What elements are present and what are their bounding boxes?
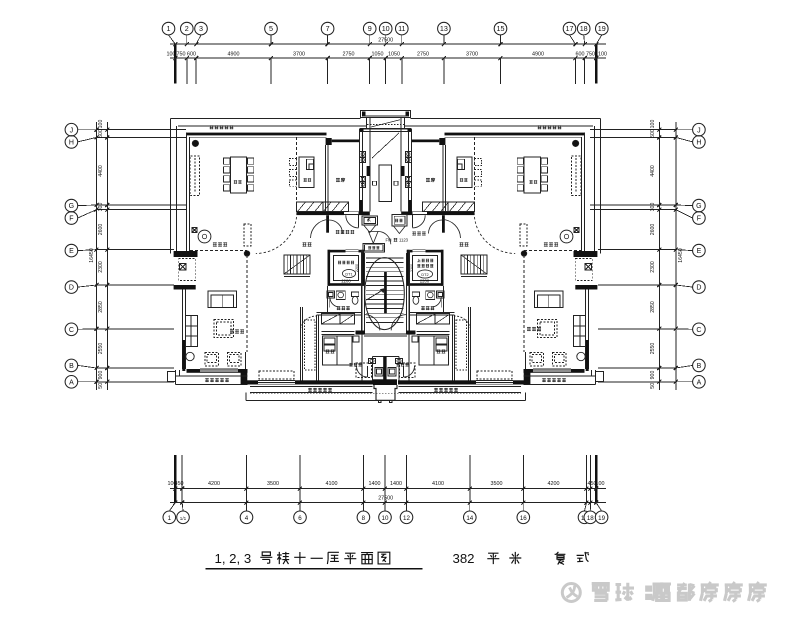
svg-text:E: E (697, 248, 702, 255)
svg-text:100: 100 (650, 120, 656, 129)
svg-text:4200: 4200 (208, 481, 220, 487)
svg-text:3500: 3500 (491, 481, 503, 487)
svg-text:5: 5 (269, 24, 273, 33)
svg-text:4100: 4100 (432, 481, 444, 487)
svg-text:2600: 2600 (98, 224, 104, 236)
svg-text:DT2: DT2 (421, 273, 428, 277)
svg-text:C: C (69, 327, 74, 334)
svg-text:8: 8 (362, 515, 366, 522)
svg-text:6: 6 (298, 515, 302, 522)
svg-text:G: G (696, 203, 701, 210)
svg-text:F: F (697, 216, 701, 223)
svg-text:100: 100 (598, 52, 607, 58)
svg-text:500: 500 (98, 129, 104, 138)
svg-text:1050: 1050 (372, 52, 384, 58)
svg-text:B: B (697, 363, 702, 370)
svg-text:16450: 16450 (678, 248, 684, 263)
svg-text:10: 10 (382, 515, 389, 522)
svg-text:A: A (69, 379, 74, 386)
svg-text:H: H (696, 140, 701, 147)
svg-text:50: 50 (98, 383, 104, 389)
svg-text:2850: 2850 (650, 301, 656, 313)
svg-text:16: 16 (520, 515, 527, 522)
svg-text:1400: 1400 (390, 481, 402, 487)
svg-text:11: 11 (398, 24, 405, 33)
svg-text:50: 50 (650, 383, 656, 389)
svg-text:G: G (69, 203, 74, 210)
svg-text:4900: 4900 (532, 52, 544, 58)
svg-text:600: 600 (576, 52, 585, 58)
svg-text:4400: 4400 (98, 165, 104, 177)
svg-text:18: 18 (580, 24, 588, 33)
svg-text:D: D (69, 285, 74, 292)
svg-text:1: 1 (168, 515, 172, 522)
svg-text:600: 600 (187, 52, 196, 58)
svg-text:2300: 2300 (98, 261, 104, 273)
svg-text:1, 2, 3: 1, 2, 3 (215, 551, 252, 566)
svg-text:100: 100 (98, 120, 104, 129)
svg-text:3500: 3500 (267, 481, 279, 487)
svg-text:2200: 2200 (341, 279, 351, 284)
svg-text:C: C (696, 327, 701, 334)
svg-text:2750: 2750 (343, 52, 355, 58)
svg-text:16450: 16450 (89, 248, 95, 263)
svg-text:27500: 27500 (378, 496, 393, 502)
svg-text:B: B (69, 363, 74, 370)
svg-text:2750: 2750 (417, 52, 429, 58)
svg-text:E: E (69, 248, 74, 255)
svg-text:D: D (696, 285, 701, 292)
svg-text:1123: 1123 (399, 238, 409, 243)
svg-text:500: 500 (650, 129, 656, 138)
svg-text:3700: 3700 (293, 52, 305, 58)
svg-text:3700: 3700 (466, 52, 478, 58)
svg-text:DT1: DT1 (345, 272, 352, 276)
svg-text:750: 750 (586, 52, 595, 58)
svg-text:100: 100 (167, 52, 176, 58)
svg-text:2200: 2200 (420, 279, 430, 284)
svg-text:10: 10 (382, 24, 390, 33)
svg-text:14: 14 (466, 515, 473, 522)
svg-text:1400: 1400 (369, 481, 381, 487)
svg-text:H: H (69, 140, 74, 147)
svg-text:12: 12 (403, 515, 410, 522)
svg-text:2300: 2300 (650, 261, 656, 273)
svg-text:9: 9 (368, 24, 372, 33)
svg-text:19: 19 (598, 24, 606, 33)
svg-text:J: J (70, 127, 74, 134)
svg-text:2200: 2200 (410, 264, 414, 272)
svg-text:F: F (69, 216, 73, 223)
svg-text:4200: 4200 (548, 481, 560, 487)
svg-text:3: 3 (199, 24, 203, 33)
svg-text:4900: 4900 (228, 52, 240, 58)
svg-text:300: 300 (650, 203, 656, 212)
svg-text:2850: 2850 (98, 301, 104, 313)
svg-text:J: J (697, 127, 701, 134)
svg-text:4100: 4100 (326, 481, 338, 487)
svg-text:4400: 4400 (650, 165, 656, 177)
svg-text:18: 18 (587, 515, 594, 522)
svg-text:2600: 2600 (650, 224, 656, 236)
svg-text:2550: 2550 (650, 343, 656, 355)
svg-text:2200: 2200 (355, 264, 359, 272)
svg-text:750: 750 (177, 52, 186, 58)
svg-text:1050: 1050 (388, 52, 400, 58)
svg-text:2: 2 (185, 24, 189, 33)
svg-text:4: 4 (245, 515, 249, 522)
svg-text:FM: FM (385, 238, 392, 243)
svg-text:100: 100 (596, 481, 605, 487)
svg-text:450: 450 (175, 481, 184, 487)
svg-text:15: 15 (497, 24, 505, 33)
svg-text:2550: 2550 (98, 343, 104, 355)
svg-text:13: 13 (440, 24, 448, 33)
svg-text:382: 382 (453, 551, 475, 566)
svg-text:300: 300 (98, 203, 104, 212)
svg-text:900: 900 (98, 371, 104, 380)
svg-text:19: 19 (598, 515, 605, 522)
svg-text:7: 7 (326, 24, 330, 33)
svg-text:A: A (697, 379, 702, 386)
svg-text:27500: 27500 (378, 38, 393, 44)
svg-text:17: 17 (566, 24, 574, 33)
svg-text:1: 1 (167, 24, 171, 33)
svg-text:900: 900 (650, 371, 656, 380)
svg-text:1/1: 1/1 (180, 516, 187, 521)
